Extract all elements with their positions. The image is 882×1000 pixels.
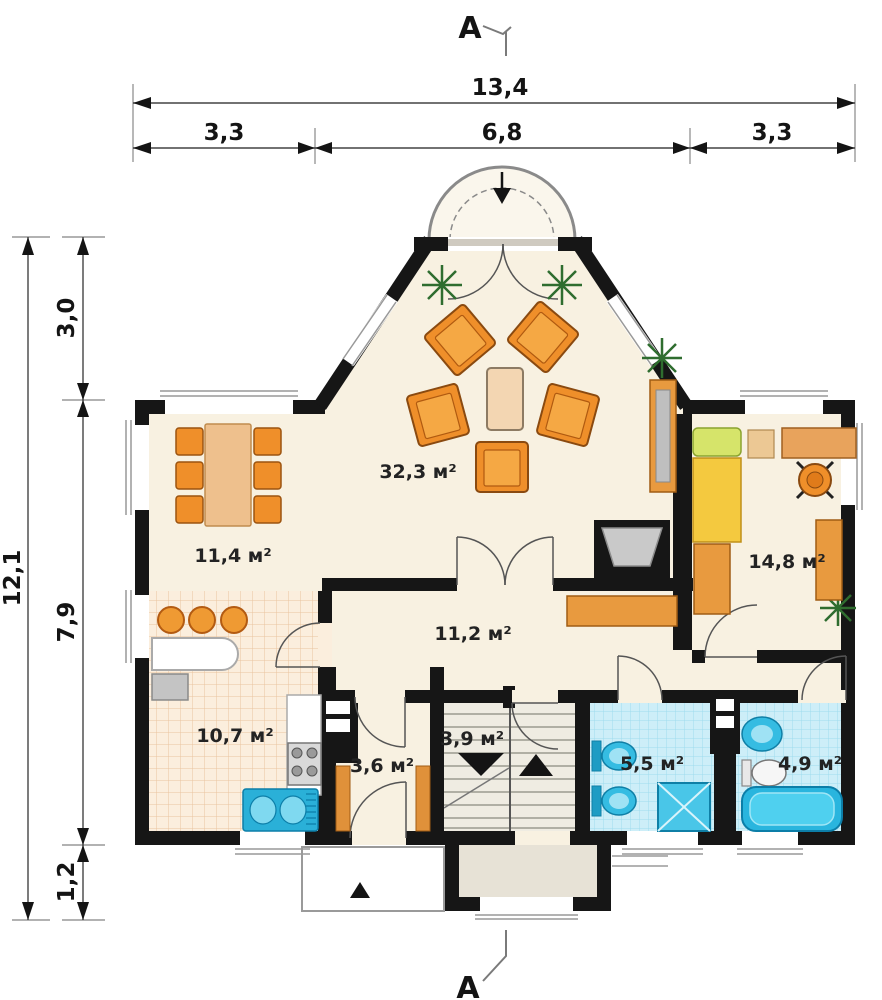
dining-table — [176, 424, 281, 526]
desk — [782, 428, 856, 458]
dining-chair — [254, 428, 281, 455]
window-bedroom-top — [740, 391, 828, 414]
dim-total-height: 12,1 — [0, 550, 26, 607]
plant-icon — [422, 265, 462, 305]
bar-stool — [189, 607, 215, 633]
dining-chair — [176, 496, 203, 523]
label-staircase: 3,9 м² — [440, 728, 504, 750]
mudroom-cabinet — [336, 766, 350, 831]
dim-seg-right: 3,3 — [752, 120, 793, 146]
bathtub — [742, 787, 842, 831]
window-left-wall-lower — [126, 590, 149, 663]
dim-seg-mid-v: 7,9 — [54, 602, 80, 643]
dim-seg-left: 3,3 — [204, 120, 245, 146]
floor-plan-page: A A 13,4 3,3 6,8 3,3 — [0, 0, 882, 1000]
window-kitchen-bottom — [235, 831, 310, 854]
floor-plan-drawing: A A 13,4 3,3 6,8 3,3 — [0, 0, 882, 1000]
dining-chair — [176, 428, 203, 455]
vent-shaft-kitchen — [318, 693, 358, 763]
svg-text:A: A — [458, 11, 482, 46]
bar-stool — [221, 607, 247, 633]
terrace-step — [612, 856, 668, 866]
dimension-top: 13,4 3,3 6,8 3,3 — [133, 75, 855, 164]
dim-seg-mid: 6,8 — [482, 120, 523, 146]
kitchen-sink — [243, 789, 318, 831]
window-bath-small-bottom — [622, 831, 703, 854]
dining-chair — [254, 462, 281, 489]
label-bathroom-small: 5,5 м² — [620, 753, 684, 775]
vent-shaft-bath — [710, 690, 740, 754]
label-hall: 11,2 м² — [434, 623, 511, 645]
bed-pillow — [693, 428, 741, 456]
breakfast-bar — [152, 638, 238, 670]
dimension-left: 12,1 3,0 7,9 1,2 — [0, 237, 105, 920]
bar-stool — [158, 607, 184, 633]
fireplace — [594, 520, 670, 580]
stove — [288, 743, 321, 785]
side-porch — [302, 847, 444, 911]
label-mudroom: 3,6 м² — [350, 755, 414, 777]
label-dining-area: 11,4 м² — [194, 545, 271, 567]
section-marker-top: A — [458, 11, 511, 56]
dim-seg-bottom: 1,2 — [54, 862, 80, 903]
svg-text:A: A — [456, 971, 480, 1000]
label-living-room: 32,3 м² — [379, 461, 456, 483]
bed — [693, 458, 741, 542]
plant-icon — [642, 338, 682, 378]
living-cabinet — [650, 380, 676, 492]
section-marker-bottom: A — [456, 930, 506, 1000]
armchair — [476, 442, 528, 492]
dim-total-width: 13,4 — [472, 75, 529, 101]
window-left-wall-upper — [126, 420, 149, 515]
shower — [658, 783, 710, 831]
dining-chair — [254, 496, 281, 523]
nightstand — [748, 430, 774, 458]
vestibule-floor — [459, 845, 597, 897]
window-vestibule-bottom — [475, 897, 578, 919]
hall-sideboard — [567, 596, 677, 626]
section-cut-symbol-bottom — [483, 930, 506, 981]
window-dining-top — [160, 391, 298, 414]
front-porch — [429, 167, 575, 240]
mudroom-cabinet — [416, 766, 430, 831]
label-bathroom-large: 4,9 м² — [778, 753, 842, 775]
bed-dresser — [694, 544, 730, 614]
bidet — [592, 786, 636, 816]
label-kitchen: 10,7 м² — [196, 725, 273, 747]
dining-chair — [176, 462, 203, 489]
office-chair — [797, 462, 833, 498]
dim-seg-top: 3,0 — [54, 298, 80, 339]
kitchen-appliance — [152, 674, 188, 700]
window-bath-large-bottom — [737, 831, 803, 854]
section-cut-symbol-top — [483, 26, 511, 56]
plant-icon — [542, 265, 582, 305]
coffee-table — [487, 368, 523, 430]
label-bedroom: 14,8 м² — [748, 551, 825, 573]
